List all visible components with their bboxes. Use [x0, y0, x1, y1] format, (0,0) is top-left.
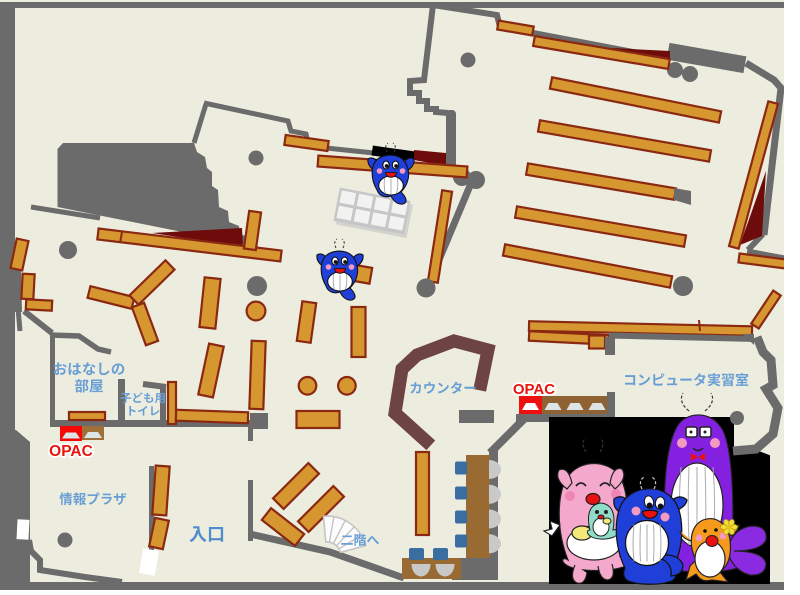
svg-text:OPAC: OPAC [513, 381, 555, 398]
svg-text:OPAC: OPAC [49, 443, 93, 460]
